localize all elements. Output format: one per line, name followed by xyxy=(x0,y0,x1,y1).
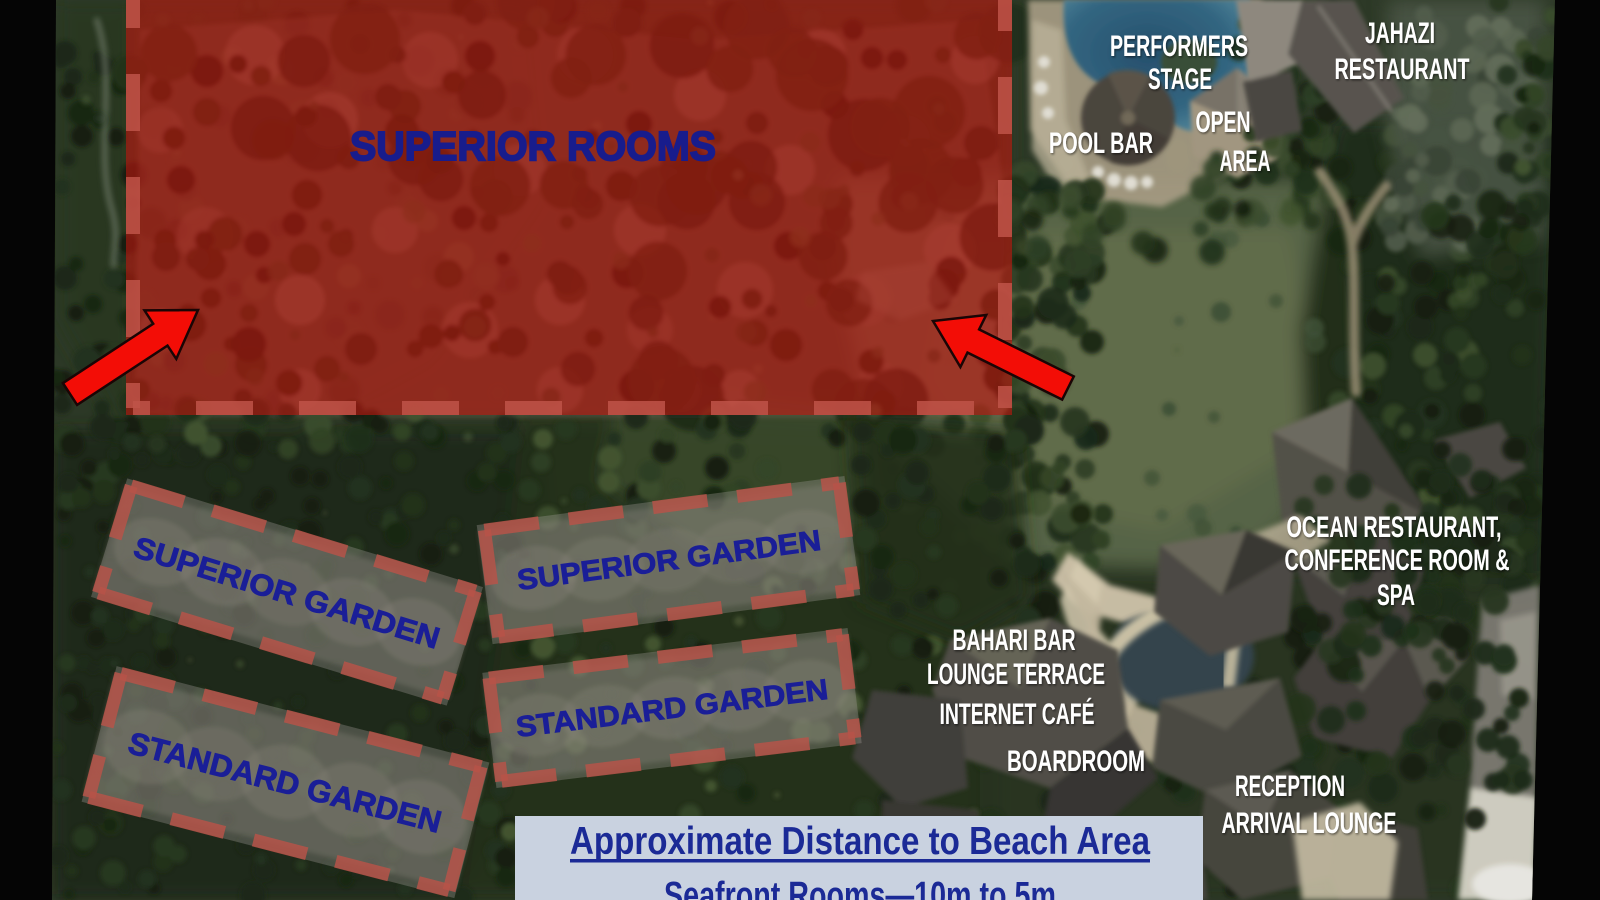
svg-text:PERFORMERS: PERFORMERS xyxy=(1110,30,1248,63)
svg-text:LOUNGE TERRACE: LOUNGE TERRACE xyxy=(927,658,1105,691)
svg-text:RECEPTION: RECEPTION xyxy=(1235,770,1345,803)
svg-text:STAGE: STAGE xyxy=(1148,63,1212,96)
svg-text:CONFERENCE ROOM &: CONFERENCE ROOM & xyxy=(1285,544,1510,577)
svg-text:SUPERIOR ROOMS: SUPERIOR ROOMS xyxy=(350,123,716,169)
svg-text:Approximate Distance to Beach: Approximate Distance to Beach Area xyxy=(570,820,1150,863)
svg-text:SPA: SPA xyxy=(1377,579,1415,612)
svg-text:ARRIVAL LOUNGE: ARRIVAL LOUNGE xyxy=(1222,807,1397,840)
svg-text:INTERNET CAFÉ: INTERNET CAFÉ xyxy=(940,697,1095,731)
svg-text:Seafront Rooms—10m to 5m: Seafront Rooms—10m to 5m xyxy=(664,875,1056,900)
svg-text:OPEN: OPEN xyxy=(1196,106,1251,139)
svg-text:POOL BAR: POOL BAR xyxy=(1049,127,1153,160)
svg-text:BAHARI BAR: BAHARI BAR xyxy=(953,624,1076,657)
svg-text:BOARDROOM: BOARDROOM xyxy=(1007,745,1145,778)
svg-text:AREA: AREA xyxy=(1220,145,1271,178)
svg-text:RESTAURANT: RESTAURANT xyxy=(1335,53,1470,86)
svg-text:OCEAN RESTAURANT,: OCEAN RESTAURANT, xyxy=(1287,511,1502,544)
svg-text:JAHAZI: JAHAZI xyxy=(1365,17,1435,50)
